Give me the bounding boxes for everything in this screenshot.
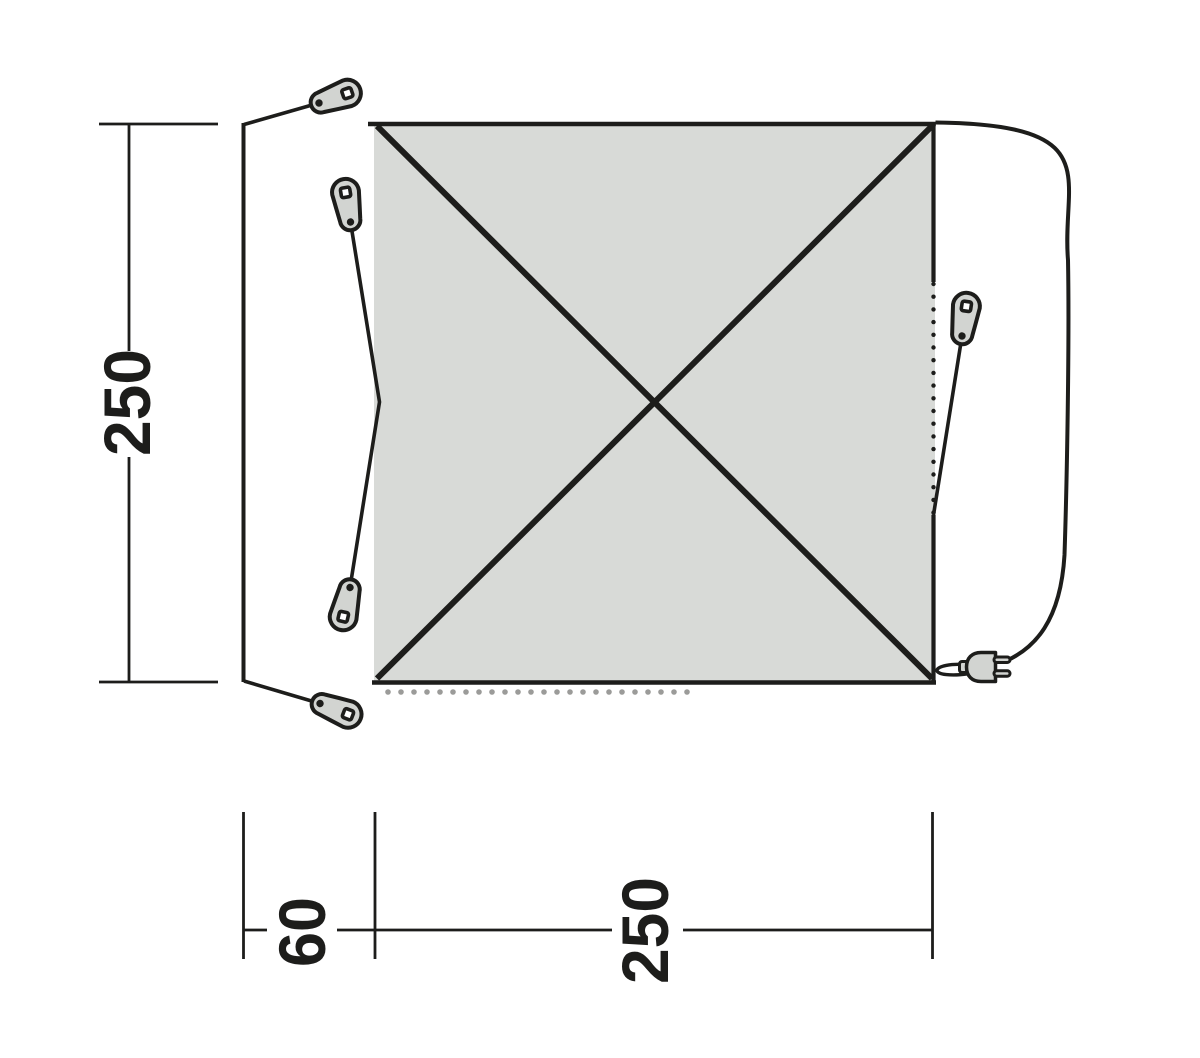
svg-text:60: 60 — [265, 897, 339, 967]
svg-text:250: 250 — [608, 877, 682, 984]
svg-text:250: 250 — [90, 349, 164, 456]
